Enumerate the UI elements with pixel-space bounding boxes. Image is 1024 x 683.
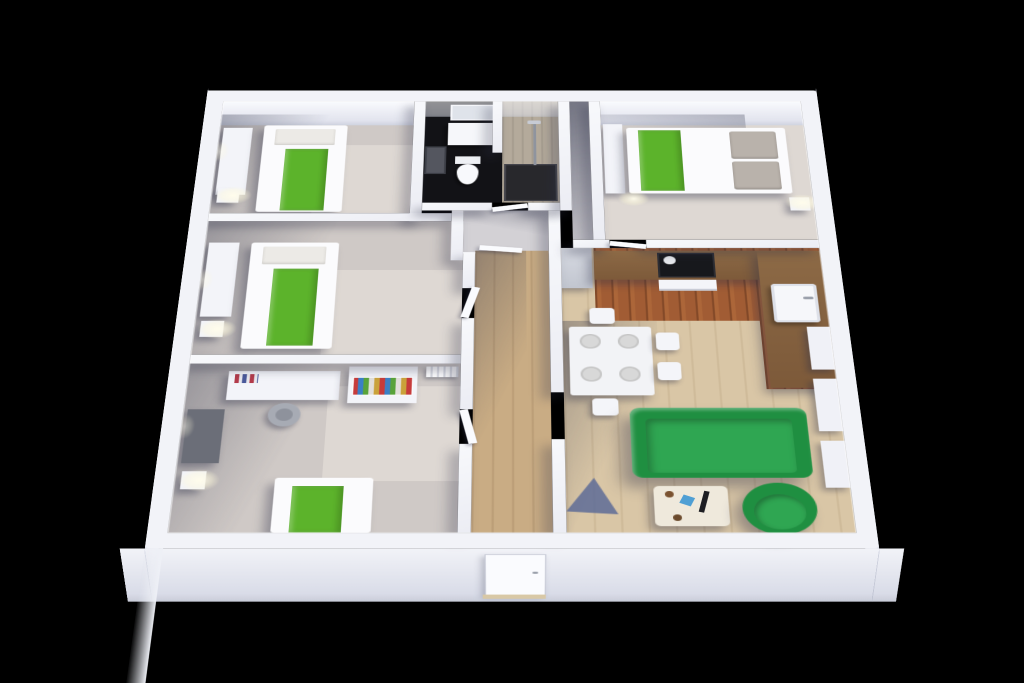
bathroom-sink-cabinet <box>448 123 493 145</box>
armchair-seat <box>753 494 809 529</box>
bedroom4-pillow-1 <box>729 132 779 159</box>
cooktop-pot <box>663 256 676 264</box>
kitchen-counter-top <box>594 251 770 280</box>
building-right-base <box>811 88 880 602</box>
desk-books <box>234 374 259 383</box>
bookshelf <box>347 367 418 404</box>
bedroom1-blanket <box>279 149 328 211</box>
entrance-door <box>485 554 547 596</box>
bookshelf-books <box>352 377 413 395</box>
wall-hall-left-c <box>457 444 472 533</box>
door-leaf-bedroom4 <box>609 241 646 249</box>
dining-chair-top <box>589 308 615 324</box>
wall-hall-left-a <box>462 252 475 288</box>
wall-bathroom-bottom-right <box>528 203 560 211</box>
shower-head <box>527 121 541 125</box>
render-stage <box>0 0 1024 683</box>
wall-bedroom2-bottom <box>189 355 460 364</box>
bedroom1-pillow <box>274 129 336 145</box>
wall-hall-right-a <box>548 210 564 392</box>
bedroom3-lamp-glow <box>168 465 230 496</box>
wall-bathroom-divider <box>492 101 502 152</box>
shower-pole <box>533 123 536 165</box>
toilet-tank <box>455 156 481 164</box>
door-leaf-bedroom2 <box>460 286 480 318</box>
bedroom1-window-glint <box>205 138 234 166</box>
door-threshold <box>483 595 546 599</box>
apartment-3d-model <box>145 90 879 548</box>
oven <box>659 280 718 291</box>
wall-vestibule-left <box>451 210 464 260</box>
wall-bedroom4-bottom-right <box>646 240 820 248</box>
washing-machine <box>424 146 447 174</box>
wall-shelf-3 <box>820 441 850 488</box>
wall-bathroom-bottom-left <box>422 203 492 211</box>
bedroom4-closet <box>603 124 626 193</box>
bedroom2-blanket <box>266 269 319 346</box>
door-handle <box>532 572 538 574</box>
dining-table <box>569 327 655 396</box>
wall-bedroom4-bottom-left <box>573 240 610 248</box>
fridge <box>561 248 593 288</box>
building-front-facade <box>120 548 905 601</box>
bedroom3-blanket <box>288 486 343 533</box>
bedroom4-runner <box>638 130 685 191</box>
bathroom-mirror <box>450 105 494 121</box>
dining-chair-right-2 <box>657 362 682 380</box>
bedroom4-lamp-glow-2 <box>611 188 656 209</box>
dining-chair-bottom <box>592 398 619 415</box>
radiator <box>426 367 458 378</box>
hallway-shadow <box>471 251 528 533</box>
bedroom4-pillow-2 <box>732 161 782 189</box>
bedroom3-window-glint <box>168 409 201 444</box>
